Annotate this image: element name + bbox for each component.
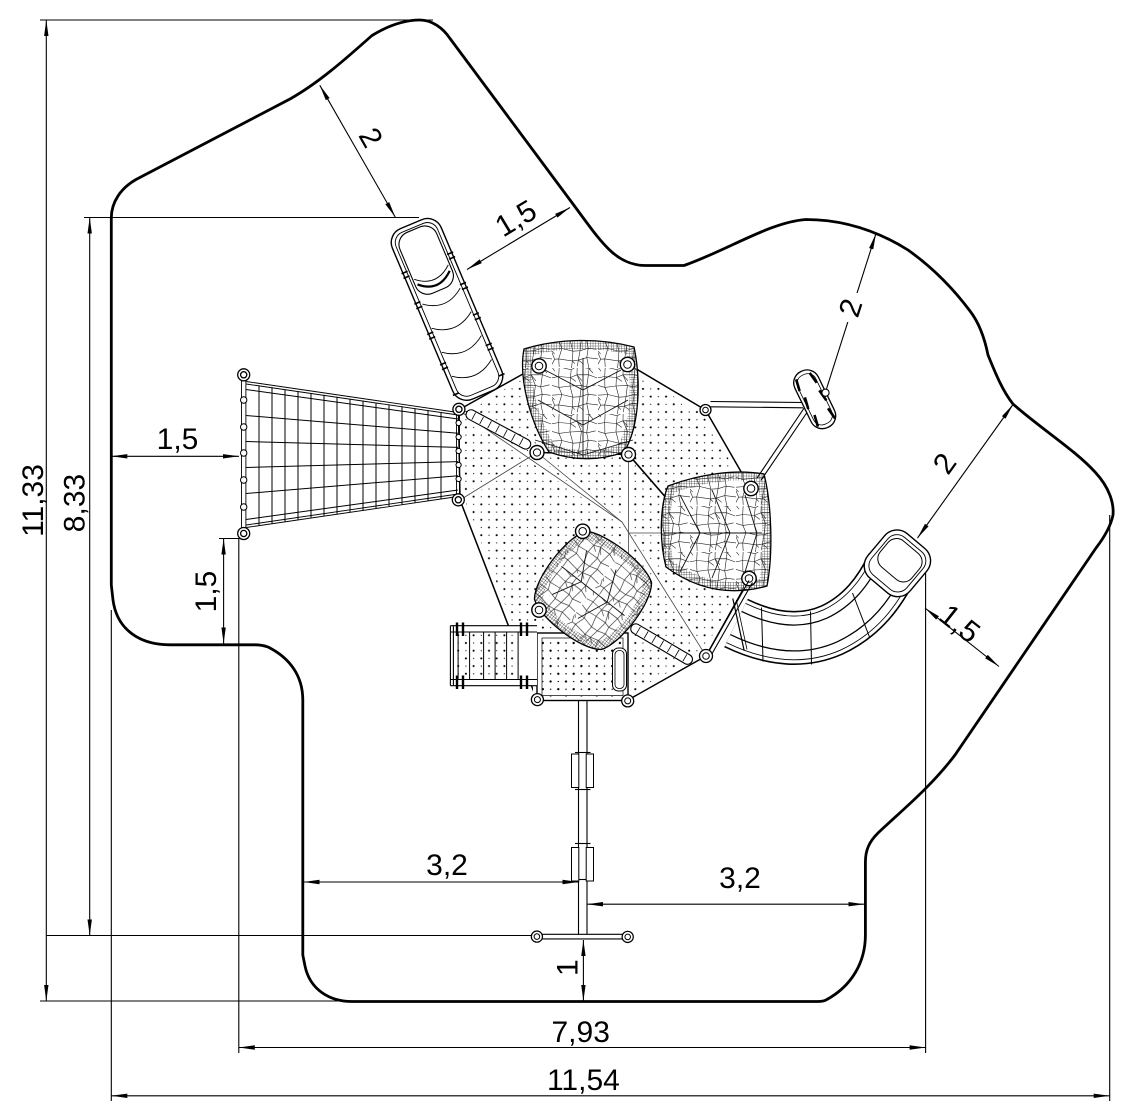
svg-text:3,2: 3,2 xyxy=(719,862,761,895)
svg-text:1: 1 xyxy=(552,959,585,976)
svg-text:1,5: 1,5 xyxy=(190,571,223,613)
svg-text:7,93: 7,93 xyxy=(552,1016,610,1049)
svg-text:11,33: 11,33 xyxy=(17,464,50,537)
svg-text:3,2: 3,2 xyxy=(426,849,468,882)
svg-text:1,5: 1,5 xyxy=(157,423,199,456)
svg-text:11,54: 11,54 xyxy=(547,1064,620,1097)
svg-text:8,33: 8,33 xyxy=(59,474,92,532)
